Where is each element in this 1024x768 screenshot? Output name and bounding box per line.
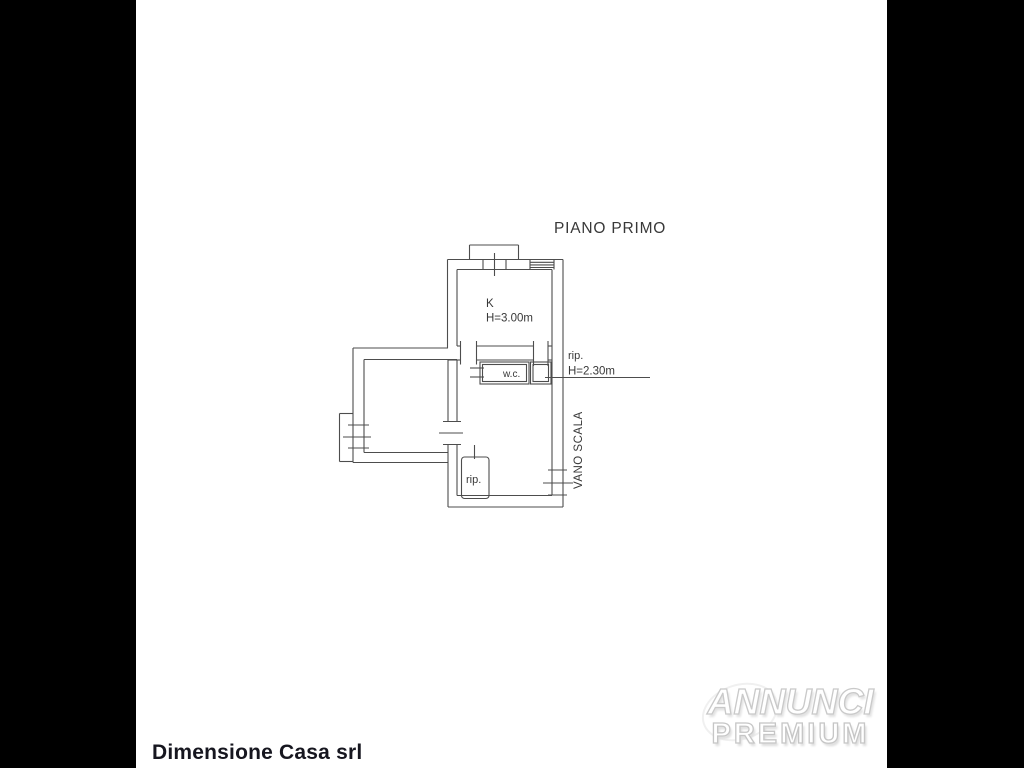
stairwell-label: VANO SCALA — [573, 411, 585, 489]
kitchen-label: K — [486, 298, 494, 310]
left-room-walls — [353, 348, 457, 463]
closet-label: rip. — [568, 350, 583, 362]
kitchen-walls — [448, 260, 564, 361]
storage-bottom-room — [462, 445, 490, 499]
kitchen-top-window-icon — [483, 253, 506, 276]
flue-hatch-icon — [530, 260, 554, 270]
left-room-window-icon — [343, 425, 371, 448]
closet-height-label: H=2.30m — [568, 366, 615, 378]
left-room-door-icon — [439, 422, 463, 445]
plan-title: PIANO PRIMO — [554, 220, 666, 237]
kitchen-height-label: H=3.00m — [486, 313, 533, 325]
bottom-wall — [448, 496, 563, 508]
screenshot-stage: PIANO PRIMO K H=3.00m w.c. rip. H=2.30m … — [0, 0, 1024, 768]
company-name-label: Dimensione Casa srl — [152, 741, 362, 765]
wc-label: w.c. — [502, 369, 520, 380]
storage-label: rip. — [466, 474, 481, 486]
floor-plan: PIANO PRIMO K H=3.00m w.c. rip. H=2.30m … — [0, 0, 1024, 768]
kitchen-door-left-icon — [461, 341, 477, 365]
entrance-door-icon — [543, 470, 573, 495]
